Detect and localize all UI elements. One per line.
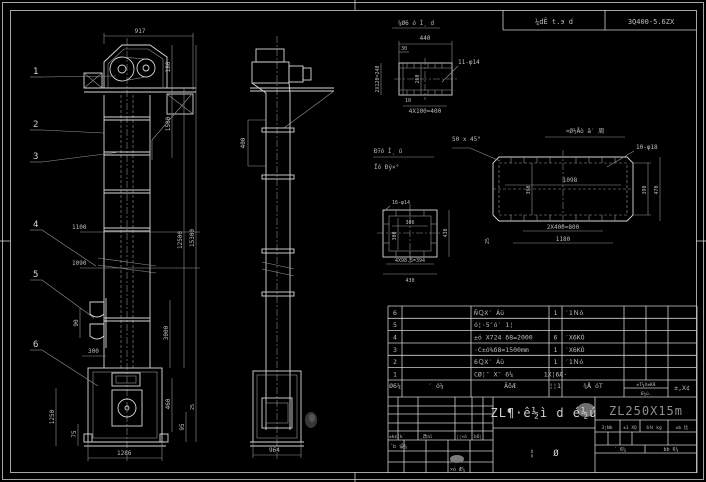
bom-cell-no: 4 — [393, 333, 397, 341]
detail-flange: Ðｦó Ì¸ ú Ïó Ðý×° 16-φ14 306 300 430 4X98… — [373, 148, 449, 284]
bom-cell-material: ′1Ｎó — [565, 358, 583, 366]
front-view-dimensions: 917 180 1500 12500 15300 3000 1100 1090 … — [49, 28, 200, 461]
dim-flange-right: 430 — [443, 228, 449, 237]
rev-label-file: ¸改al — [420, 433, 433, 440]
dim-260: 260 — [415, 74, 421, 83]
dim-95: 95 — [179, 423, 186, 431]
flange-label-1: Ðｦó Ì¸ ú — [374, 148, 403, 155]
bom-cell-name: ó¦·5″ó′ 1¦ — [474, 321, 513, 329]
stage-label-1: 3¦Nb — [602, 425, 613, 431]
stage-label-2: ±1 XQ — [623, 425, 637, 431]
dim-1180: 1180 — [556, 236, 571, 243]
header-spec-label: ¼dÊ t.э d — [535, 17, 573, 26]
balloon-3: 3 — [33, 152, 38, 162]
dim-plate-edge: 25 — [485, 238, 491, 244]
sheet-label-2: bb 6¼ — [663, 447, 678, 453]
dim-30: 30 — [401, 46, 407, 52]
dim-90: 90 — [73, 319, 80, 327]
rev-label-sign: ¦¦×ó — [456, 433, 467, 440]
dim-2x400: 2X400=800 — [547, 224, 580, 231]
bom-header-weight-sub: 6¼ú. — [641, 390, 652, 397]
dim-plate-outer-h: 470 — [654, 185, 660, 194]
stage-label-4: ±b 比 — [676, 424, 689, 431]
dim-1098: 1098 — [563, 177, 578, 184]
smudge-highlight — [309, 414, 315, 422]
bom-table: 6ÑＱX′ Áü1′1Ｎó5ó¦·5″ó′ 1¦4±ó X724 δ8=2000… — [388, 306, 697, 473]
bom-cell-qty: 1 — [554, 309, 558, 317]
dim-1090: 1090 — [72, 260, 87, 267]
bom-header-note: ±,X¢ — [674, 384, 690, 392]
bom-cell-name: CØ¦″ X″ 6¼ — [474, 370, 513, 378]
bom-header-no: Ø6¼ — [389, 382, 401, 390]
dim-plate-right-h: 390 — [642, 185, 648, 194]
dim-400: 400 — [240, 137, 247, 148]
dim-1500: 1500 — [165, 116, 172, 131]
dim-1250: 1250 — [49, 409, 56, 424]
bom-cell-no: 5 — [393, 321, 397, 329]
dim-3000: 3000 — [163, 325, 170, 340]
dim-flange-width: 430 — [405, 278, 414, 284]
bom-cell-name: ±ó X724 δ8=2000 — [474, 333, 533, 341]
sheet-label-1: ′ 6¼ — [614, 447, 626, 453]
designer-label: ′b 设¼ — [390, 443, 407, 450]
dim-917: 917 — [135, 28, 146, 35]
bom-header-weight: ±T¼X±KÆ — [637, 382, 656, 388]
channel-holes-label: 11-φ14 — [458, 59, 480, 66]
bom-cell-no: 3 — [393, 346, 397, 354]
bom-cell-name: ÑＱX′ Áü — [474, 308, 504, 317]
detail-channel: ¼Ø6 ó Ì¸ d 440 30 2X120=240 260 18 4X100… — [375, 20, 480, 115]
flange-holes-label: 16-φ14 — [392, 200, 410, 206]
title-block: ±k¢(k′ ¸改al ¦¦×ó bÓ¦ ′b 设¼ ×ó Æ¼ ZL¶·ê½ì… — [388, 397, 697, 473]
rev-label-date: bÓ¦ — [474, 433, 482, 440]
model-number: ZL250X15m — [609, 404, 683, 418]
bom-cell-qty: 6 — [554, 333, 558, 341]
detail-plate: ¤Ø½Åò ā′ 周 10-φ18 1098 390 390 470 2X400… — [452, 128, 660, 244]
dim-2x120: 2X120=240 — [375, 65, 381, 92]
bom-header-qty: ¦¦1 — [549, 382, 561, 390]
dim-1286: 1286 — [117, 450, 132, 457]
dim-75: 75 — [71, 430, 78, 438]
dim-flange-pitch: 4X98.5=394 — [395, 258, 425, 264]
title-mark-1: ¦ — [529, 449, 534, 459]
balloon-2: 2 — [33, 120, 38, 130]
balloon-5: 5 — [33, 270, 38, 280]
balloon-6: 6 — [33, 340, 38, 350]
side-view: 400 964 — [240, 36, 334, 460]
bom-header-material: ¾Å óT — [583, 381, 603, 390]
bom-cell-no: 1 — [393, 370, 397, 378]
dim-plate-inner-h: 390 — [526, 185, 532, 194]
bom-cell-material: ′X6KÓ — [565, 345, 585, 354]
dim-15300: 15300 — [189, 229, 196, 247]
stage-label-3: 6Ｎ kg — [646, 425, 662, 431]
title-mark-2: Ø — [553, 448, 559, 459]
bom-cell-name: ·C±ó%δ8=1500mm — [474, 346, 529, 354]
header-strip: ¼dÊ t.э d 3Q400-5.6ZX — [503, 10, 697, 30]
flange-label-2: Ïó Ðý×° — [374, 164, 399, 171]
dim-440: 440 — [420, 35, 431, 42]
bom-cell-material: ′X6KÓ — [565, 332, 585, 341]
drawing-frame — [0, 0, 706, 482]
bom-header-name: ÃõÆ — [504, 381, 516, 390]
bom-cell-no: 2 — [393, 358, 397, 366]
drawing-title: ZL¶·ê½ì d é½ú — [491, 406, 598, 420]
cad-drawing: ¼dÊ t.э d 3Q400-5.6ZX — [0, 0, 706, 482]
dim-1100: 1100 — [72, 224, 87, 231]
bom-cell-name: 6ＱX′ Áü — [474, 357, 504, 366]
cad-drawing-canvas: ¼dÊ t.э d 3Q400-5.6ZX — [0, 0, 706, 482]
dim-180: 180 — [165, 61, 172, 72]
channel-title: ¼Ø6 ó Ì¸ d — [398, 20, 435, 27]
bom-cell-qty: 1 — [554, 346, 558, 354]
dim-25: 25 — [190, 404, 196, 410]
bom-header-code: ′ ó¼ — [428, 382, 444, 390]
dim-18: 18 — [405, 98, 411, 104]
rev-label-mark: ±k¢(k′ — [389, 434, 405, 440]
dim-4x100: 4X100=400 — [409, 108, 442, 115]
dim-300: 300 — [88, 348, 99, 355]
balloon-4: 4 — [33, 220, 38, 230]
dim-flange-h: 300 — [392, 231, 398, 240]
dim-964: 964 — [269, 447, 280, 454]
dim-306: 306 — [405, 220, 414, 226]
header-code-label: 3Q400-5.6ZX — [628, 18, 675, 26]
signature-mark — [450, 455, 464, 463]
plate-title: ¤Ø½Åò ā′ 周 — [566, 128, 605, 135]
dim-12500: 12500 — [177, 231, 184, 249]
balloon-1: 1 — [33, 67, 38, 77]
bom-cell-no: 6 — [393, 309, 397, 317]
chamfer-label: 50 x 45° — [452, 136, 481, 143]
plate-holes-label: 10-φ18 — [636, 144, 658, 151]
bom-cell-qty: 1X¦6Æ· — [544, 370, 567, 378]
approver-label: ×ó Æ¼ — [450, 466, 465, 473]
dim-460: 460 — [165, 398, 172, 409]
bom-cell-material: ′1Ｎó — [565, 309, 583, 317]
bom-cell-qty: 1 — [554, 358, 558, 366]
